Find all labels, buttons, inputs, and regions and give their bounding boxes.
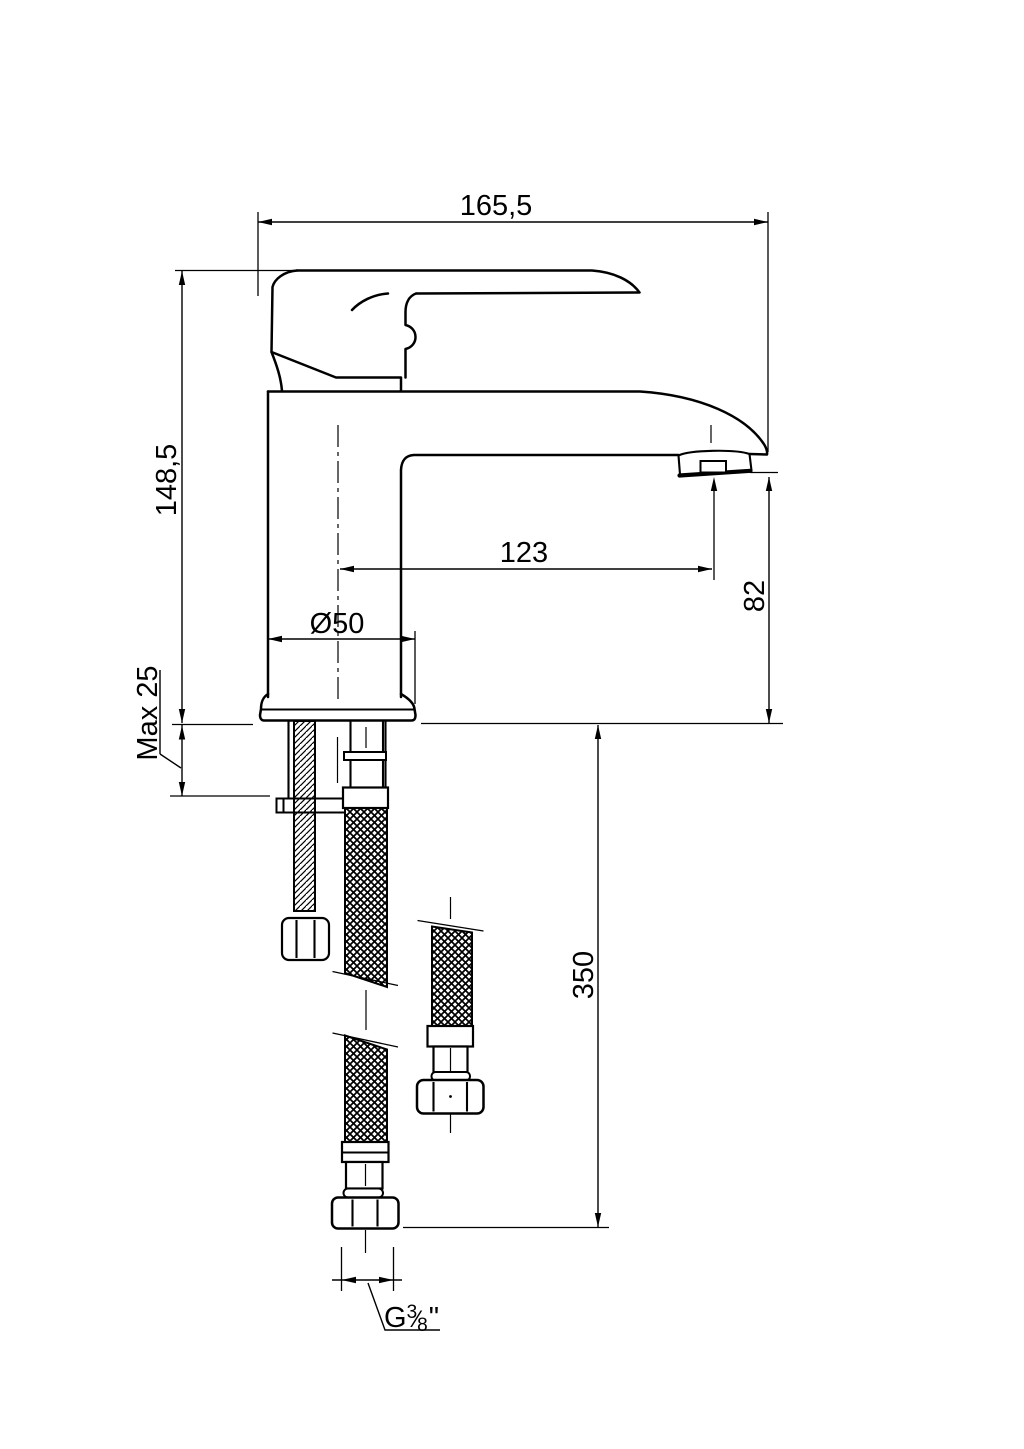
dim-label-hose-length: 350 [568,951,600,999]
dim-label-base-diameter: Ø50 [310,608,365,640]
dim-label-thread: G3⁄8" [384,1302,439,1336]
dim-label-spout-height: 82 [739,580,771,612]
dim-max-deck: Max 25 [132,665,185,796]
aerator-insert [701,461,727,473]
dim-hose-length: 350 [568,725,601,1227]
handle-lever [297,271,640,294]
dim-label-spout-reach: 123 [500,537,548,569]
handle-left-body [272,271,402,392]
dim-total-height: 148,5 [151,271,303,724]
faucet-technical-drawing: 165,5 148,5 Max 25 Ø50 123 [0,0,1024,1449]
fixing-nut [282,918,329,960]
dim-base-diameter: Ø50 [268,608,415,704]
technical-drawing-page: 165,5 148,5 Max 25 Ø50 123 [0,0,1024,1449]
dim-label-max-deck: Max 25 [132,665,164,760]
spout-top [268,392,767,455]
dim-label-total-height: 148,5 [151,444,183,517]
flex-hose-left [332,788,399,1254]
threaded-rod [294,721,315,911]
spout-bottom [401,455,679,697]
hose-hex-nut-left [332,1198,399,1229]
faucet-outline [260,271,767,721]
underdeck-assembly [277,721,484,1253]
deck-lines [170,724,783,1228]
dim-spout-height: 82 [739,473,778,724]
flex-hose-right [417,897,484,1133]
body-shoulder-arc [272,352,283,391]
lever-underside-arc [352,294,388,311]
aerator [679,425,752,476]
dim-label-total-width: 165,5 [460,190,533,222]
handle-neck [406,294,417,378]
supply-pipe [344,721,386,787]
dim-total-width: 165,5 [258,190,768,452]
dim-thread-size: G3⁄8" [332,1247,440,1336]
dim-spout-reach: 123 [340,477,717,580]
